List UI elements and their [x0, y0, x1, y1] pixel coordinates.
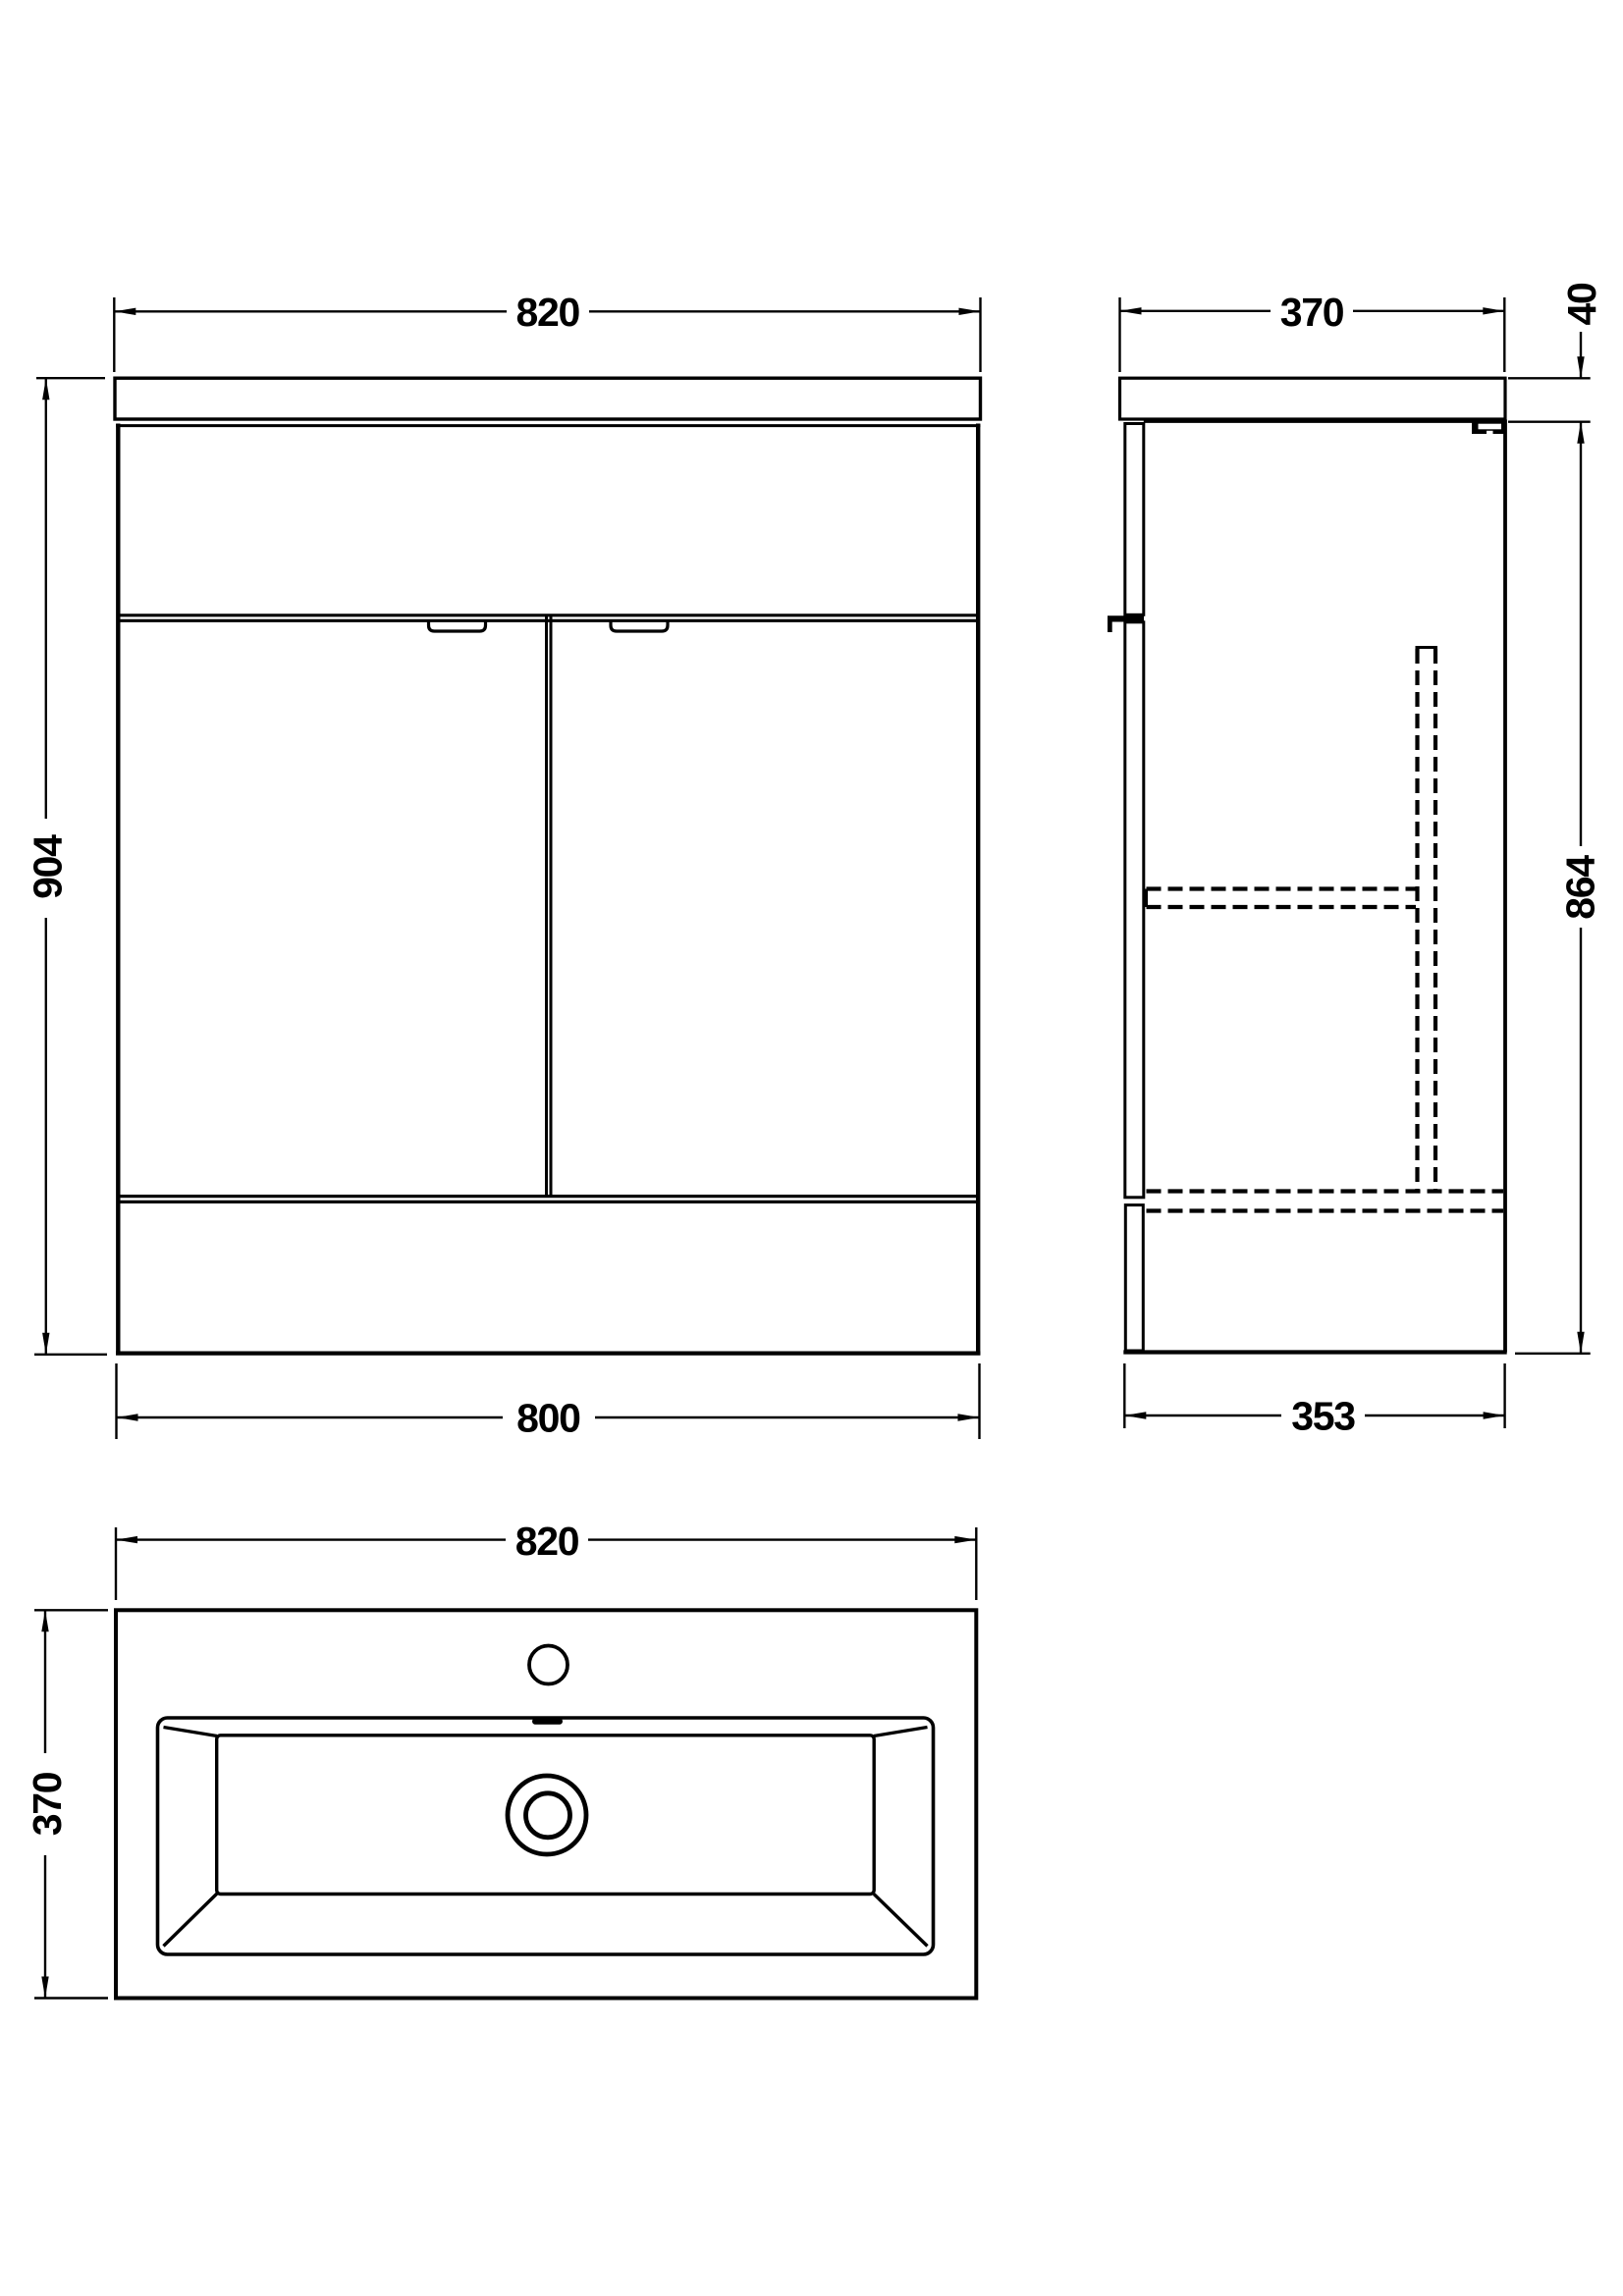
- svg-text:820: 820: [515, 290, 579, 335]
- svg-text:40: 40: [1559, 283, 1604, 326]
- svg-text:353: 353: [1291, 1394, 1355, 1439]
- svg-text:904: 904: [26, 834, 71, 899]
- svg-text:370: 370: [25, 1772, 70, 1836]
- svg-text:370: 370: [1280, 290, 1344, 335]
- svg-text:800: 800: [516, 1395, 580, 1440]
- svg-text:864: 864: [1558, 855, 1603, 920]
- svg-text:820: 820: [515, 1519, 579, 1564]
